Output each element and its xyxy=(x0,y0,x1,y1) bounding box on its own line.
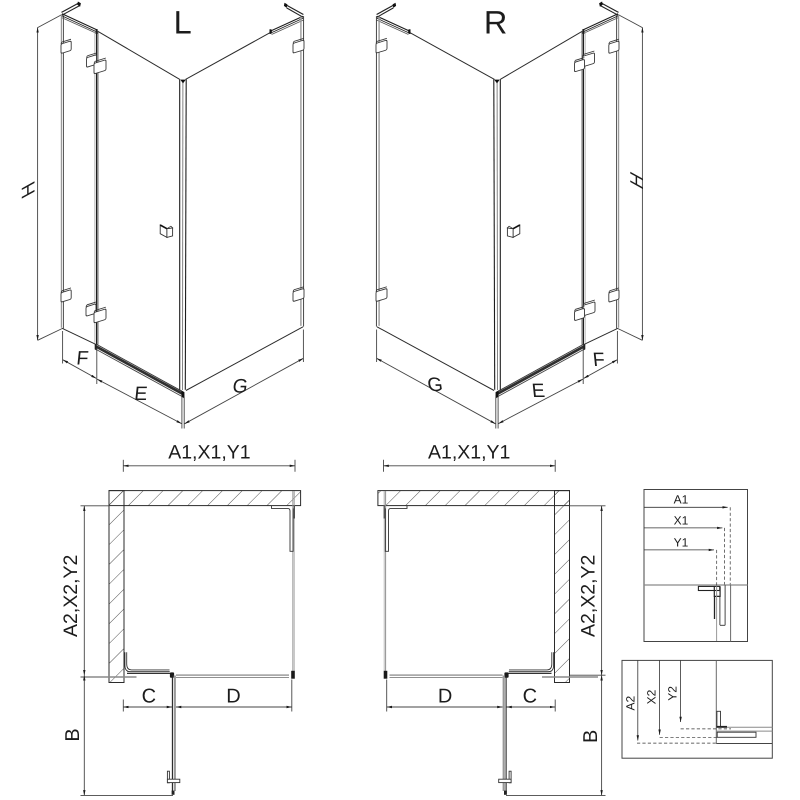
svg-text:E: E xyxy=(133,383,148,405)
svg-text:B: B xyxy=(580,730,602,743)
svg-text:G: G xyxy=(426,374,444,396)
svg-text:A2: A2 xyxy=(624,695,638,710)
svg-text:C: C xyxy=(142,686,156,708)
svg-text:A2,X2,Y2: A2,X2,Y2 xyxy=(578,555,600,637)
svg-text:D: D xyxy=(438,686,452,708)
svg-text:A1,X1,Y1: A1,X1,Y1 xyxy=(428,442,510,464)
svg-text:A1,X1,Y1: A1,X1,Y1 xyxy=(168,442,250,464)
svg-text:A1: A1 xyxy=(674,493,689,507)
svg-text:C: C xyxy=(523,686,537,708)
svg-text:L: L xyxy=(174,5,192,41)
svg-text:B: B xyxy=(62,728,84,741)
svg-text:A2,X2,Y2: A2,X2,Y2 xyxy=(60,555,82,637)
svg-text:D: D xyxy=(226,686,240,708)
svg-text:R: R xyxy=(484,5,507,41)
svg-text:F: F xyxy=(592,349,606,371)
svg-text:F: F xyxy=(75,347,89,369)
svg-text:Y1: Y1 xyxy=(674,535,689,549)
svg-text:X2: X2 xyxy=(644,689,658,704)
svg-text:X1: X1 xyxy=(674,513,689,527)
svg-text:E: E xyxy=(531,380,546,402)
svg-text:Y2: Y2 xyxy=(666,686,680,701)
svg-text:G: G xyxy=(231,376,249,398)
